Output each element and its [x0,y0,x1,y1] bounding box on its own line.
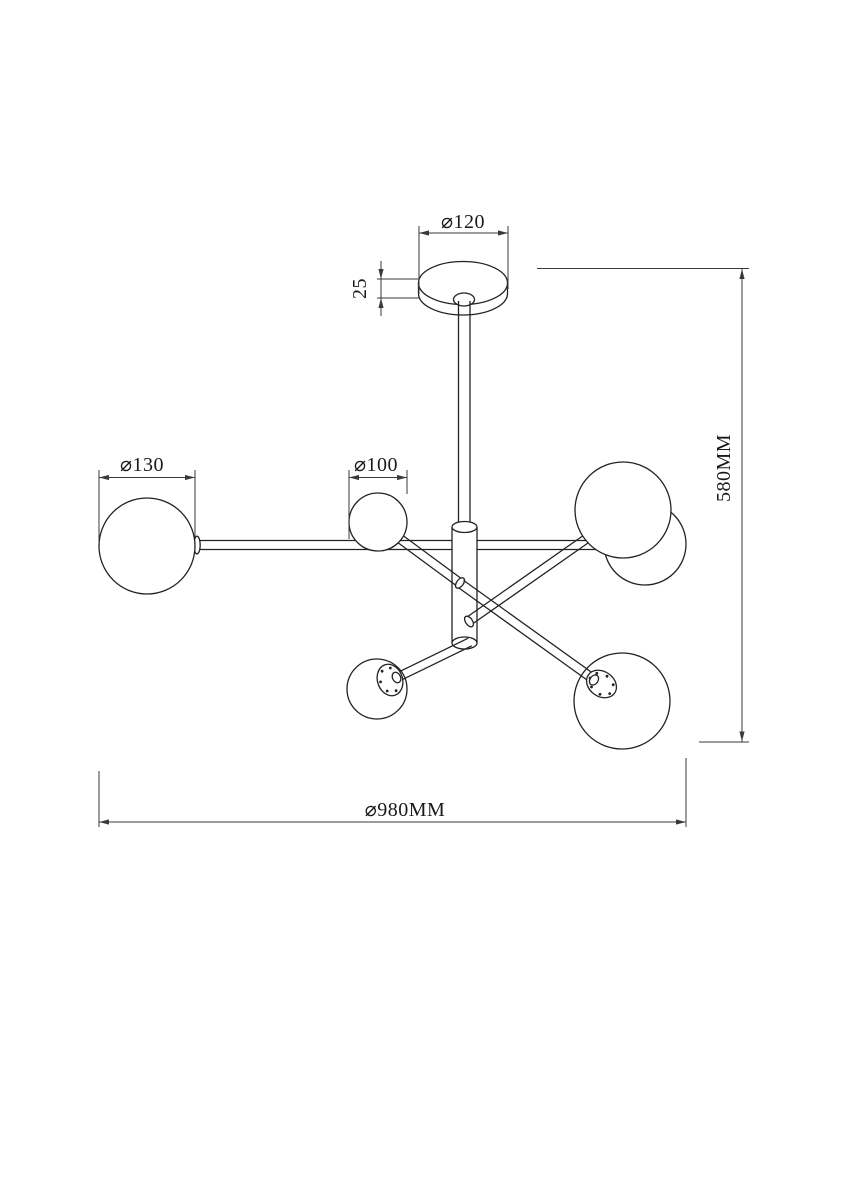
technical-drawing: ⌀120 25 ⌀130 ⌀100 580MM [0,0,848,1200]
arrow-top [378,269,383,279]
dimension-label-canopy-height: 25 [349,278,371,299]
arrow-left [419,230,429,235]
arrow-top [739,269,744,279]
canopy-stem-boss [454,293,475,306]
globe-lower-right [574,653,670,749]
dimension-canopy-height: 25 [349,261,419,316]
stem-rod [459,301,471,526]
arrow-right [498,230,508,235]
arrow-bottom [378,298,383,308]
arrow-right [676,819,686,824]
hub-bottom-cap [452,637,477,649]
arrow-bottom [739,732,744,742]
dimension-label-small-globe: ⌀100 [354,454,398,476]
ceiling-canopy [419,262,508,316]
globe-upper-right [575,462,671,558]
globe-left-large [99,498,195,594]
drawing-canvas: ⌀120 25 ⌀130 ⌀100 580MM [0,0,848,1200]
hub-top-cap [452,522,477,533]
arrow-left [99,475,109,480]
arrow-right [397,475,407,480]
dimension-label-overall-diameter: ⌀980MM [365,799,446,821]
dimension-overall-diameter: ⌀980MM [99,758,686,827]
arrow-right [185,475,195,480]
dimension-label-large-globe: ⌀130 [120,454,164,476]
dimension-label-canopy-diameter: ⌀120 [441,211,485,233]
arm-lower-right [458,580,596,683]
globe-middle-small [349,493,407,551]
arrow-left [99,819,109,824]
dimension-label-overall-height: 580MM [713,434,735,502]
